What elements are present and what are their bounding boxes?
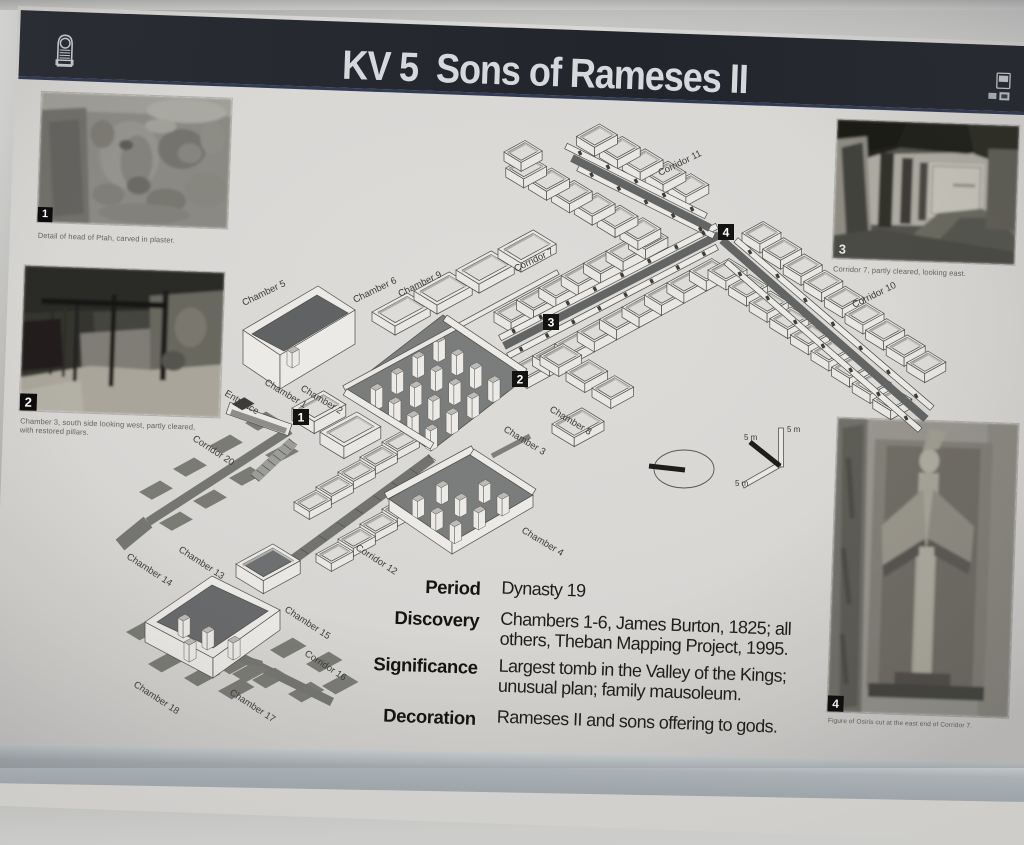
svg-text:5 m: 5 m [735, 479, 749, 488]
svg-text:Corridor 12: Corridor 12 [353, 542, 399, 577]
svg-text:1: 1 [298, 411, 305, 425]
svg-text:5 m: 5 m [744, 433, 758, 442]
svg-text:Chamber 13: Chamber 13 [176, 544, 226, 582]
svg-text:Chamber 14: Chamber 14 [124, 551, 174, 589]
svg-text:Chamber 5: Chamber 5 [240, 278, 287, 308]
svg-text:Chamber 15: Chamber 15 [282, 604, 332, 642]
svg-text:Chamber 3: Chamber 3 [501, 424, 547, 458]
svg-text:Chamber 4: Chamber 4 [519, 525, 565, 559]
svg-text:Chamber 18: Chamber 18 [131, 679, 181, 717]
svg-text:3: 3 [548, 316, 555, 330]
svg-text:Chamber 17: Chamber 17 [227, 687, 277, 725]
svg-text:2: 2 [517, 373, 524, 387]
svg-text:4: 4 [723, 226, 730, 240]
svg-text:5 m: 5 m [787, 425, 801, 434]
